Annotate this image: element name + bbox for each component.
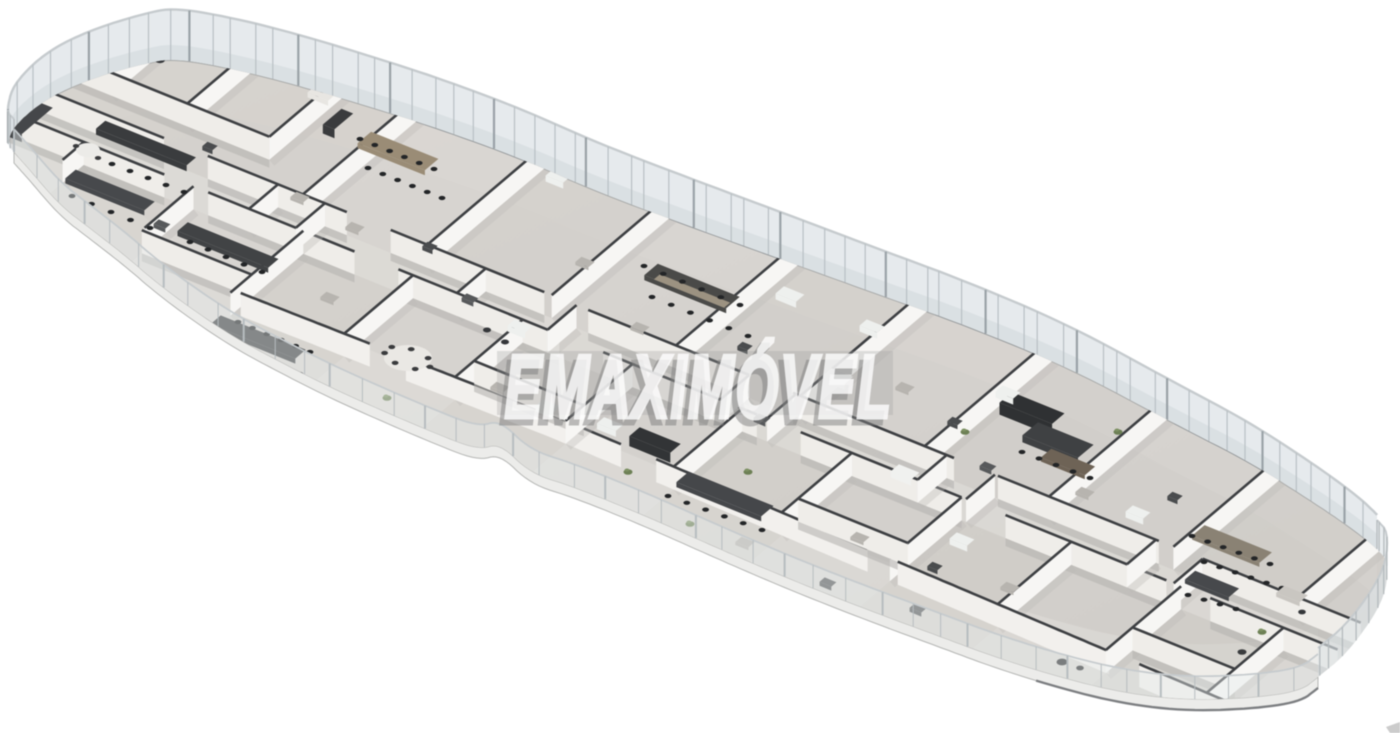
svg-text:EMAXIMÓVEL: EMAXIMÓVEL [505,338,891,437]
